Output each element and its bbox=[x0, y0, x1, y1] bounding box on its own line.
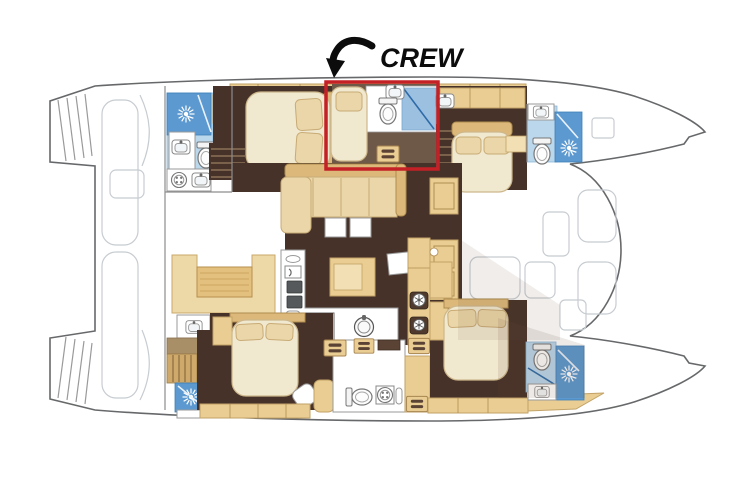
shelf bbox=[378, 340, 400, 350]
ottoman bbox=[350, 218, 371, 237]
wardrobe bbox=[430, 262, 452, 298]
sink-icon bbox=[533, 106, 548, 118]
lockers bbox=[200, 404, 310, 418]
stool bbox=[387, 252, 410, 275]
appliance-column bbox=[408, 238, 430, 354]
toilet-icon bbox=[379, 98, 397, 124]
sink-icon bbox=[192, 173, 210, 187]
catamaran-floorplan: CREW bbox=[0, 0, 744, 496]
locker-icon bbox=[354, 339, 374, 353]
pillow bbox=[456, 137, 481, 154]
pillow bbox=[295, 98, 323, 131]
bathroom-aft-mid bbox=[324, 339, 405, 412]
galley-fixture bbox=[286, 256, 300, 263]
sink-icon bbox=[172, 140, 190, 154]
toilet-icon bbox=[533, 138, 551, 164]
step-landing bbox=[506, 136, 526, 152]
bathroom-fwd-stbd bbox=[527, 104, 582, 164]
galley-sink bbox=[287, 296, 302, 308]
lockers bbox=[428, 398, 528, 413]
pillow bbox=[266, 323, 294, 340]
washer-icon bbox=[413, 319, 424, 330]
armrest bbox=[396, 164, 406, 216]
dining-table bbox=[197, 267, 252, 297]
crew-label: CREW bbox=[380, 43, 465, 73]
locker-icon bbox=[324, 340, 346, 356]
pillow bbox=[484, 137, 509, 154]
towel-rail bbox=[396, 388, 402, 404]
appliance bbox=[285, 266, 301, 278]
washer-icon bbox=[413, 294, 425, 306]
crew-cabin bbox=[331, 84, 438, 169]
washer-icon bbox=[172, 173, 187, 188]
washer-icon bbox=[378, 388, 393, 403]
coffee-table bbox=[330, 258, 375, 296]
toilet-icon bbox=[346, 388, 372, 406]
yacht-floorplan-page: CREW bbox=[0, 0, 744, 496]
drawer-icon bbox=[409, 338, 430, 353]
stairs-aft bbox=[167, 354, 197, 383]
pillow bbox=[295, 132, 323, 165]
crew-arrow-icon bbox=[326, 40, 372, 78]
nightstand bbox=[213, 317, 232, 345]
pillow bbox=[336, 92, 362, 111]
desk bbox=[314, 380, 334, 412]
galley-sink bbox=[287, 281, 302, 293]
drawer-icon bbox=[407, 396, 428, 411]
ottoman bbox=[325, 218, 346, 237]
sink-icon bbox=[386, 85, 404, 99]
pillow bbox=[236, 323, 264, 340]
cabinet-column-aft bbox=[405, 356, 430, 412]
locker-icon bbox=[377, 146, 399, 162]
